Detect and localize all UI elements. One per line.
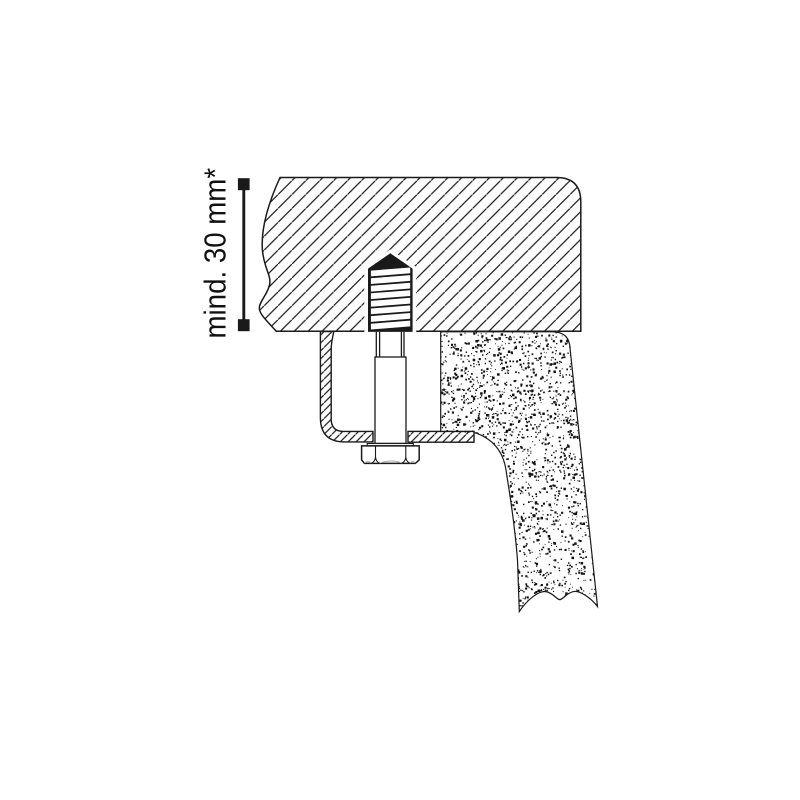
svg-text:mind. 30 mm*: mind. 30 mm* bbox=[199, 168, 233, 339]
